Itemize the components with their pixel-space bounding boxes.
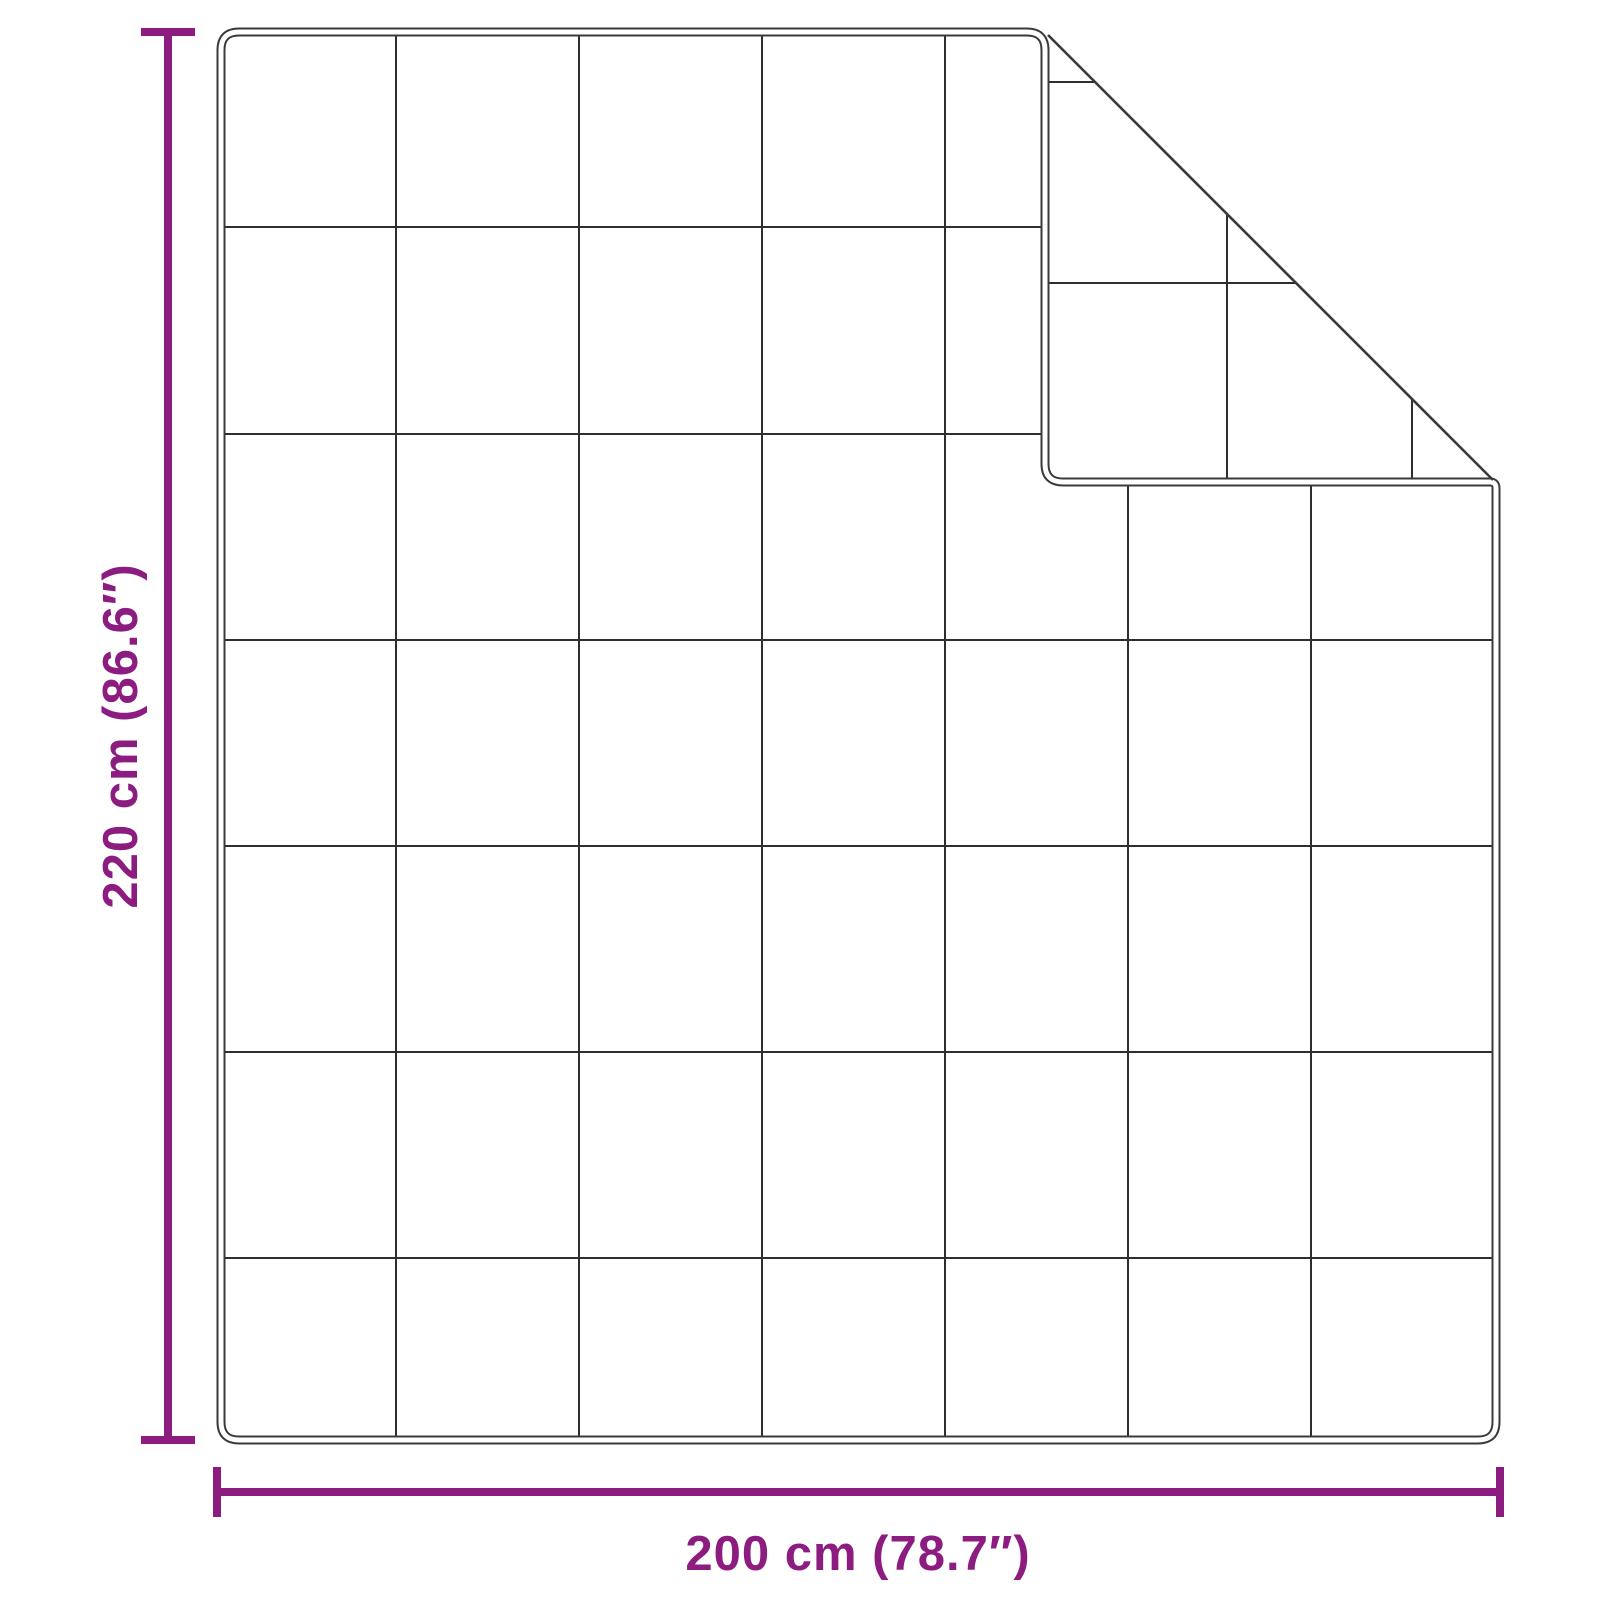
blanket-dimension-diagram: 220 cm (86.6″) 200 cm (78.7″) <box>0 0 1600 1600</box>
height-dimension: 220 cm (86.6″) <box>94 28 195 1444</box>
width-dimension-line <box>217 1488 1500 1496</box>
width-dimension-label: 200 cm (78.7″) <box>685 1527 1030 1581</box>
fold-crease-line <box>1048 35 1493 480</box>
width-dimension-cap-right <box>1496 1467 1504 1517</box>
height-dimension-cap-bottom <box>141 1436 195 1444</box>
blanket-outline <box>221 32 1496 1440</box>
quilt-grid <box>223 34 1494 1438</box>
diagram-canvas: 220 cm (86.6″) 200 cm (78.7″) <box>0 0 1600 1600</box>
height-dimension-line <box>164 32 172 1440</box>
width-dimension: 200 cm (78.7″) <box>213 1467 1504 1581</box>
blanket-outline-gap <box>221 32 1496 1440</box>
height-dimension-label: 220 cm (86.6″) <box>94 563 148 908</box>
width-dimension-cap-left <box>213 1467 221 1517</box>
height-dimension-cap-top <box>141 28 195 36</box>
